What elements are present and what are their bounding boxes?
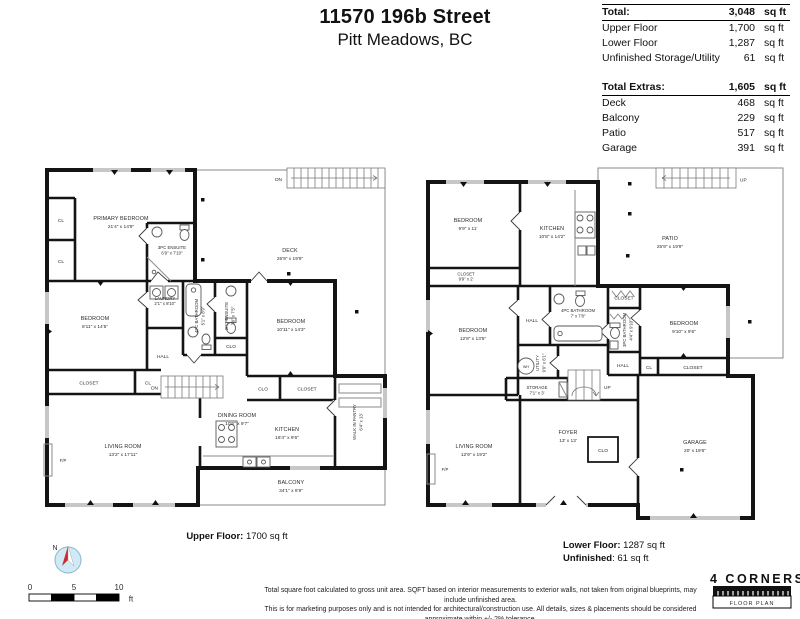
row-value: 1,605 — [719, 81, 755, 94]
pantry-shelves — [339, 384, 381, 407]
room-dims-4pc-bathroom: 5'1" x 8'9" — [201, 306, 206, 325]
table-row: Lower Floor 1,287 sq ft — [602, 36, 790, 51]
stairs-up-label: UP — [740, 178, 747, 184]
caption-value: 1287 sq ft — [623, 540, 665, 551]
page-title: 11570 196b Street — [280, 6, 530, 29]
closet-label: CL — [58, 259, 64, 265]
closet-label: CLOSET — [614, 296, 633, 302]
north-letter: N — [52, 545, 57, 552]
disclaimer-line-1: Total square foot calculated to gross un… — [258, 586, 703, 605]
closet-label: CL — [646, 365, 652, 371]
row-value: 391 — [719, 142, 755, 155]
caption-value: 1700 sq ft — [246, 531, 288, 542]
room-dims-deck: 25'9" x 19'9" — [277, 256, 304, 262]
room-label-bedroom-right: BEDROOM — [670, 321, 699, 327]
room-label-kitchen: KITCHEN — [275, 427, 299, 433]
caption-label: Unfinished — [563, 553, 612, 564]
caption-value: : 61 sq ft — [612, 553, 648, 564]
hall-label: HALL — [617, 363, 629, 369]
room-dims-primary-bedroom: 21'4" x 14'9" — [108, 224, 135, 230]
four-corners-logo: 4 CORNERS FLOOR PLAN — [710, 572, 794, 615]
room-dims-2pc-ensuite: 7'9" x 7'5" — [231, 306, 236, 325]
patio-stairs — [656, 168, 736, 188]
disclaimer-line-2: This is for marketing purposes only and … — [258, 605, 703, 619]
room-dims-kitchen: 16'4" x 9'6" — [275, 435, 299, 441]
row-value: 1,287 — [719, 37, 755, 50]
wall-markers — [428, 182, 697, 518]
scale-tick-10: 10 — [115, 583, 124, 592]
row-unit: sq ft — [755, 6, 790, 19]
room-label-living-room: LIVING ROOM — [455, 444, 492, 450]
upper-floor-plan: DECK 25'9" x 19'9" DN PRIMARY BEDROOM 21… — [35, 160, 400, 532]
bath3-fixtures — [610, 314, 630, 349]
table-gap — [602, 66, 790, 80]
caption-label: Lower Floor: — [563, 540, 621, 551]
main-stairs-down — [161, 376, 223, 398]
room-label-bedroom-top: BEDROOM — [454, 218, 483, 224]
page-subtitle: Pitt Meadows, BC — [280, 30, 530, 50]
closet-label: CLO — [258, 387, 268, 393]
room-label-storage: STORAGE — [527, 385, 548, 390]
row-unit: sq ft — [755, 97, 790, 110]
closet-label: CLOSET — [79, 381, 98, 387]
deck-outline — [195, 168, 385, 376]
room-dims-dining-room: 10'6" x 9'7" — [225, 421, 249, 427]
room-label-2pc-ensuite: 2PC ENSUITE — [224, 302, 229, 330]
row-unit: sq ft — [755, 142, 790, 155]
room-label-foyer: FOYER — [558, 430, 577, 436]
room-label-3pc-ensuite: 3PC ENSUITE — [158, 245, 186, 250]
room-label-4pc-bathroom: 4PC BATHROOM — [561, 308, 595, 313]
room-dims-3pc-bathroom: 4'4" x 9'10" — [629, 319, 634, 341]
room-label-pantry: WALK IN PANTRY — [352, 404, 357, 440]
room-dims-utility: 9'9" x 6'1" — [542, 353, 547, 372]
row-label: Balcony — [602, 112, 719, 125]
row-value: 468 — [719, 97, 755, 110]
room-dims-living-room: 12'9" x 19'2" — [461, 452, 488, 458]
stove-icon — [575, 212, 595, 238]
water-heater-label: WH — [523, 365, 529, 369]
room-label-patio: PATIO — [662, 236, 678, 242]
stairs-dn-label: DN — [151, 386, 158, 392]
logo-ruler-icon: FLOOR PLAN — [712, 586, 792, 610]
lower-floor-plan: PATIO 25'9" x 19'9" UP BEDROOM 9'9" x 11… — [418, 160, 790, 532]
row-label: Lower Floor — [602, 37, 719, 50]
row-label: Unfinished Storage/Utility — [602, 52, 720, 65]
room-dims-living-room: 13'2" x 17'11" — [109, 452, 138, 458]
room-dims-garage: 20' x 19'6" — [684, 448, 706, 454]
row-label: Total Extras: — [602, 81, 719, 94]
caption-label: Upper Floor: — [186, 531, 243, 542]
fireplace-label: F/P — [442, 467, 449, 472]
room-dims-foyer: 13' x 13' — [559, 438, 577, 444]
stairs-dn-label: DN — [275, 177, 282, 183]
logo-subtitle: FLOOR PLAN — [730, 601, 775, 607]
row-unit: sq ft — [755, 22, 790, 35]
room-dims-4pc-bathroom: 7' x 7'8" — [571, 314, 586, 319]
row-unit: sq ft — [755, 127, 790, 140]
scale-bar: 0 5 10 ft — [26, 580, 146, 615]
room-dims-bedroom-right: 9'10" x 9'6" — [672, 329, 696, 335]
row-value: 229 — [719, 112, 755, 125]
table-row: Unfinished Storage/Utility 61 sq ft — [602, 51, 790, 66]
garage-post — [680, 468, 684, 472]
table-row-extras-total: Total Extras: 1,605 sq ft — [602, 80, 790, 96]
table-row: Patio 517 sq ft — [602, 126, 790, 141]
room-dims-kitchen: 10'8" x 14'2" — [539, 234, 566, 240]
scale-unit: ft — [129, 595, 134, 604]
row-value: 1,700 — [719, 22, 755, 35]
room-label-4pc-bathroom: 4PC BATHROOM — [194, 299, 199, 333]
room-dims-balcony: 34'1" x 6'9" — [279, 488, 303, 494]
row-label: Patio — [602, 127, 719, 140]
closet-label: CLOSET — [683, 365, 702, 371]
room-label-garage: GARAGE — [683, 440, 707, 446]
deck-stairs — [287, 168, 385, 188]
room-label-kitchen: KITCHEN — [540, 226, 564, 232]
row-label: Deck — [602, 97, 719, 110]
row-label: Total: — [602, 6, 719, 19]
floor-plan-sheet: 11570 196b Street Pitt Meadows, BC Total… — [0, 0, 800, 619]
north-arrow: N — [48, 538, 88, 583]
room-label-primary-bedroom: PRIMARY BEDROOM — [93, 216, 149, 222]
room-dims-bedroom-left: 8'11" x 14'5" — [82, 324, 108, 330]
upper-fixtures — [44, 225, 381, 476]
room-label-3pc-bathroom: 3PC BATHROOM — [622, 313, 627, 347]
room-dims-bedroom-top: 9'9" x 11' — [459, 226, 478, 232]
room-label-bedroom-left: BEDROOM — [81, 316, 110, 322]
row-unit: sq ft — [755, 37, 790, 50]
room-label-dining-room: DINING ROOM — [218, 413, 257, 419]
fireplace-label: F/P — [60, 458, 67, 463]
room-dims-laundry: 2'1" x 8'10" — [154, 301, 176, 306]
room-dims-bedroom-right: 10'11" x 14'3" — [277, 327, 306, 333]
room-dims-closet-top: 9'9" x 2' — [459, 277, 474, 282]
lower-floor-caption: Lower Floor: 1287 sq ft Unfinished: 61 s… — [563, 540, 665, 565]
scale-tick-0: 0 — [28, 583, 33, 592]
row-label: Garage — [602, 142, 719, 155]
row-label: Upper Floor — [602, 22, 719, 35]
disclaimer: Total square foot calculated to gross un… — [258, 586, 703, 619]
room-label-utility: UTILITY — [535, 355, 540, 371]
main-stairs-up — [568, 370, 600, 400]
closet-label: CLO — [598, 448, 608, 454]
closet-label: CLO — [226, 344, 236, 350]
row-unit: sq ft — [755, 52, 790, 65]
table-row: Garage 391 sq ft — [602, 141, 790, 156]
room-label-deck: DECK — [282, 248, 298, 254]
wall-markers — [47, 170, 294, 505]
table-row: Deck 468 sq ft — [602, 96, 790, 111]
closet-label: CL — [58, 218, 64, 224]
upper-floor-caption: Upper Floor: 1700 sq ft — [137, 531, 337, 542]
row-unit: sq ft — [755, 81, 790, 94]
table-row-total: Total: 3,048 sq ft — [602, 4, 790, 21]
stairs-up-label: UP — [604, 385, 611, 391]
table-row: Balcony 229 sq ft — [602, 111, 790, 126]
hall-label: HALL — [157, 354, 169, 360]
balcony-outline — [198, 468, 385, 505]
room-label-living-room: LIVING ROOM — [104, 444, 141, 450]
logo-name: 4 CORNERS — [710, 572, 794, 586]
room-dims-bedroom-mid: 12'8" x 13'5" — [460, 336, 487, 342]
room-dims-3pc-ensuite: 6'9" x 7'10" — [161, 251, 183, 256]
row-value: 61 — [720, 52, 755, 65]
room-label-bedroom-right: BEDROOM — [277, 319, 306, 325]
closet-label: CLOSET — [297, 387, 316, 393]
room-dims-storage: 7'1" x 3' — [530, 391, 545, 396]
row-value: 517 — [719, 127, 755, 140]
row-value: 3,048 — [719, 6, 755, 19]
utility-panel-icon — [559, 382, 567, 397]
row-unit: sq ft — [755, 112, 790, 125]
scale-tick-5: 5 — [72, 583, 77, 592]
title-block: 11570 196b Street Pitt Meadows, BC — [280, 6, 530, 50]
area-table: Total: 3,048 sq ft Upper Floor 1,700 sq … — [602, 4, 790, 156]
table-row: Upper Floor 1,700 sq ft — [602, 21, 790, 36]
room-label-bedroom-mid: BEDROOM — [459, 328, 488, 334]
kitchen-sink-icon — [203, 456, 333, 467]
room-label-balcony: BALCONY — [278, 480, 305, 486]
room-dims-patio: 25'9" x 19'9" — [657, 244, 684, 250]
hall-label: HALL — [526, 318, 538, 324]
room-dims-pantry: 6'4" x 13' — [359, 413, 364, 430]
